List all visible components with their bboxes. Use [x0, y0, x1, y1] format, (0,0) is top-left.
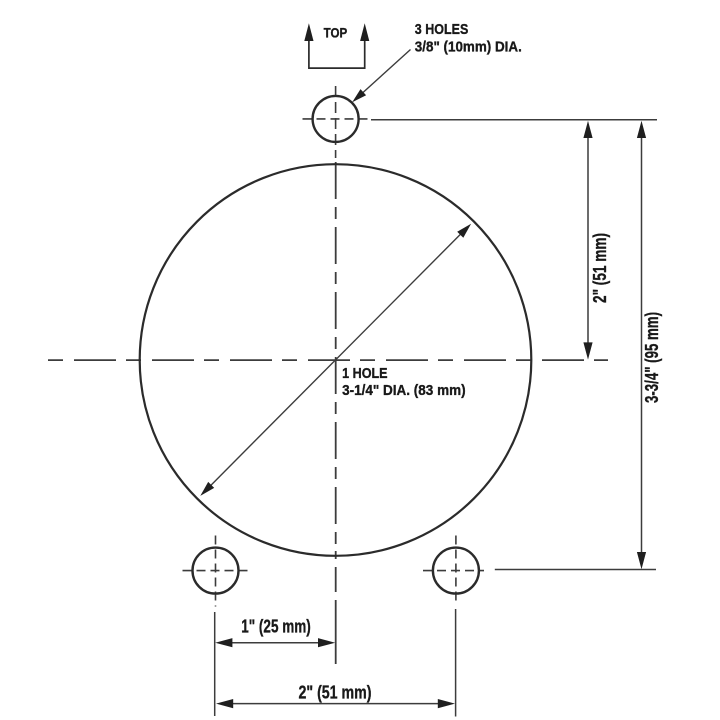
- svg-text:3/8" (10mm) DIA.: 3/8" (10mm) DIA.: [415, 39, 522, 56]
- svg-text:2" (51 mm): 2" (51 mm): [299, 682, 372, 702]
- svg-text:TOP: TOP: [324, 26, 348, 41]
- svg-text:1 HOLE: 1 HOLE: [342, 365, 388, 382]
- svg-text:3-1/4" DIA. (83 mm): 3-1/4" DIA. (83 mm): [342, 382, 466, 399]
- svg-text:3 HOLES: 3 HOLES: [415, 21, 469, 38]
- svg-text:2" (51 mm): 2" (51 mm): [590, 233, 610, 303]
- svg-text:3-3/4" (95 mm): 3-3/4" (95 mm): [642, 312, 662, 403]
- svg-text:1" (25 mm): 1" (25 mm): [241, 617, 311, 637]
